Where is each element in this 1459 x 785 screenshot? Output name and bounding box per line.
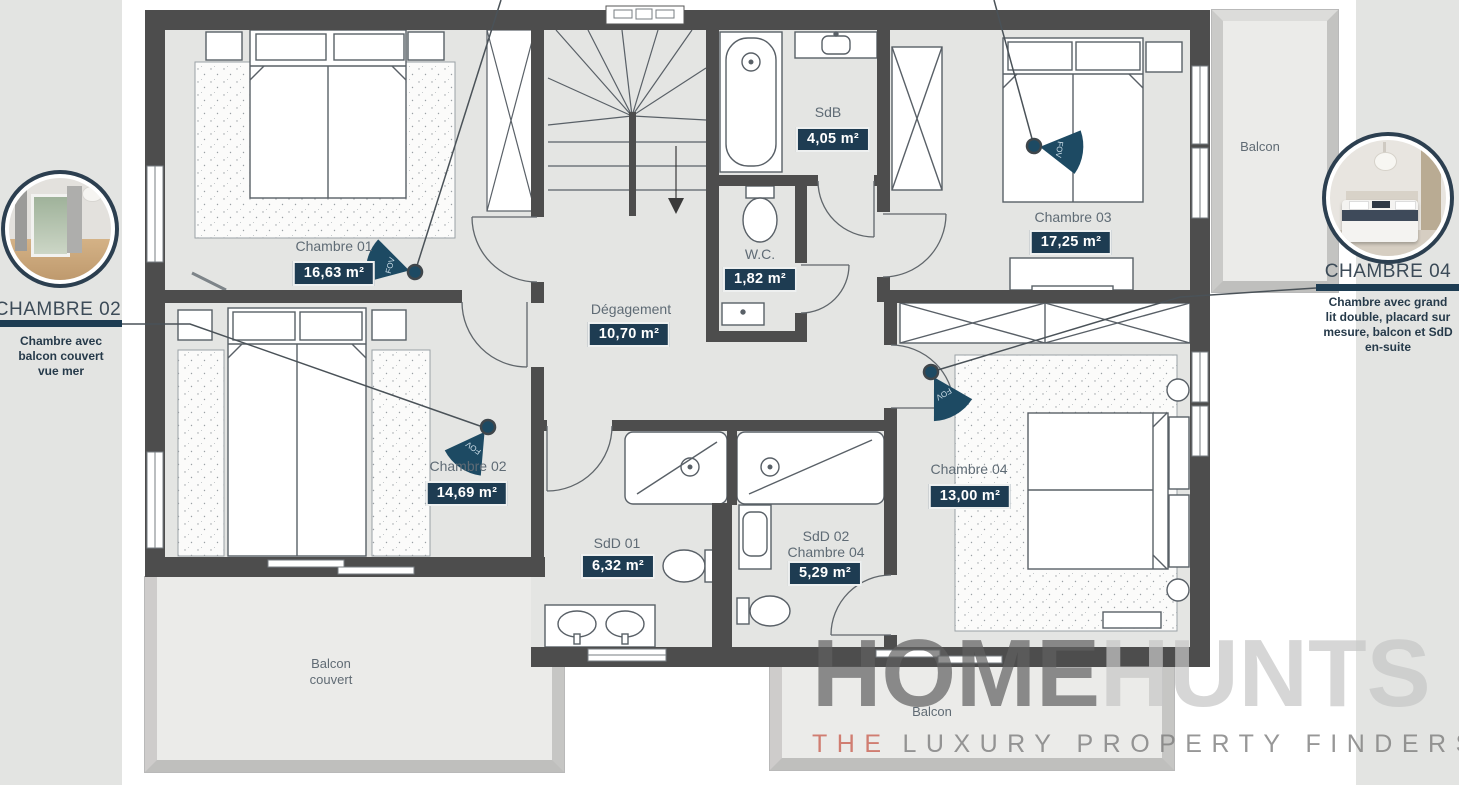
floor-plan: FOV FOV FOV FOV xyxy=(0,0,1459,785)
sliding-door xyxy=(938,656,1002,663)
room-label-chambre01: Chambre 01 xyxy=(295,238,372,254)
area-badge-wc: 1,82 m² xyxy=(723,267,797,292)
chambre01-nightstand xyxy=(408,32,444,60)
sliding-door xyxy=(876,650,940,657)
room-label-wc: W.C. xyxy=(745,246,775,262)
chambre04-side-table xyxy=(1167,579,1189,601)
area-badge-degagement: 10,70 m² xyxy=(588,322,670,347)
sliding-door xyxy=(338,567,414,574)
floor-plan-page: FOV FOV FOV FOV Chambre 01 16,63 m² Cham… xyxy=(0,0,1459,785)
sdd02-vanity xyxy=(739,505,771,569)
chambre03-nightstand xyxy=(1146,42,1182,72)
room-label-chambre02: Chambre 02 xyxy=(429,458,506,474)
photo-ring-chambre04 xyxy=(1322,132,1454,264)
sdd01-vanity xyxy=(545,605,655,647)
photo-ring-chambre02 xyxy=(1,170,119,288)
photo-bed-throw xyxy=(1342,210,1419,222)
area-badge-sdd02: 5,29 m² xyxy=(788,561,862,586)
zone-label-balcon-right: Balcon xyxy=(1240,139,1280,155)
chambre04-bed xyxy=(1028,413,1168,569)
shower-tray xyxy=(737,432,884,504)
toilet xyxy=(663,550,705,582)
inset-divider xyxy=(1316,284,1459,291)
chambre03-dresser xyxy=(1010,258,1133,290)
chambre02-rug xyxy=(372,350,430,556)
toilet xyxy=(746,186,774,198)
area-badge-sdd01: 6,32 m² xyxy=(581,554,655,579)
photo-curtain xyxy=(67,186,82,253)
chambre01-nightstand xyxy=(206,32,242,60)
photo-pillow xyxy=(1372,201,1391,208)
area-badge-sdb: 4,05 m² xyxy=(796,127,870,152)
photo-ceiling-lamp xyxy=(82,186,102,202)
inset-caption-chambre04: Chambre avec grand lit double, placard s… xyxy=(1317,295,1459,355)
room-label-chambre03: Chambre 03 xyxy=(1034,209,1111,225)
inset-caption-chambre02: Chambre avec balcon couvert vue mer xyxy=(0,334,122,379)
chambre04-side-table xyxy=(1167,379,1189,401)
photo-pendant-lamp xyxy=(1374,152,1397,171)
area-badge-chambre03: 17,25 m² xyxy=(1030,230,1112,255)
inset-title-chambre04: CHAMBRE 04 xyxy=(1325,261,1451,283)
photo-curtain xyxy=(15,188,27,251)
zone-label-balcon-bottom: Balcon xyxy=(912,704,952,720)
inset-divider xyxy=(0,320,122,327)
chambre02-nightstand xyxy=(372,310,406,340)
photo-pillow xyxy=(1395,201,1416,210)
area-badge-chambre04: 13,00 m² xyxy=(929,484,1011,509)
zone-label-balcon-couvert: Balcon couvert xyxy=(310,656,353,687)
photo-chambre02 xyxy=(5,174,115,284)
sliding-door xyxy=(268,560,344,567)
photo-curtain xyxy=(1421,149,1442,230)
inset-title-chambre02: CHAMBRE 02 xyxy=(0,299,121,321)
room-label-sdd01: SdD 01 xyxy=(594,535,641,551)
room-label-sdd02: SdD 02 Chambre 04 xyxy=(787,528,864,560)
chambre04-bench xyxy=(1103,612,1161,628)
photo-chambre04 xyxy=(1326,136,1450,260)
area-badge-chambre02: 14,69 m² xyxy=(426,481,508,506)
room-label-sdb: SdB xyxy=(815,104,841,120)
toilet xyxy=(737,598,749,624)
area-badge-chambre01: 16,63 m² xyxy=(293,261,375,286)
room-label-degagement: Dégagement xyxy=(591,301,671,317)
photo-window xyxy=(31,194,70,257)
room-label-chambre04: Chambre 04 xyxy=(930,461,1007,477)
photo-pillow xyxy=(1349,201,1370,210)
chambre02-rug xyxy=(178,350,224,556)
